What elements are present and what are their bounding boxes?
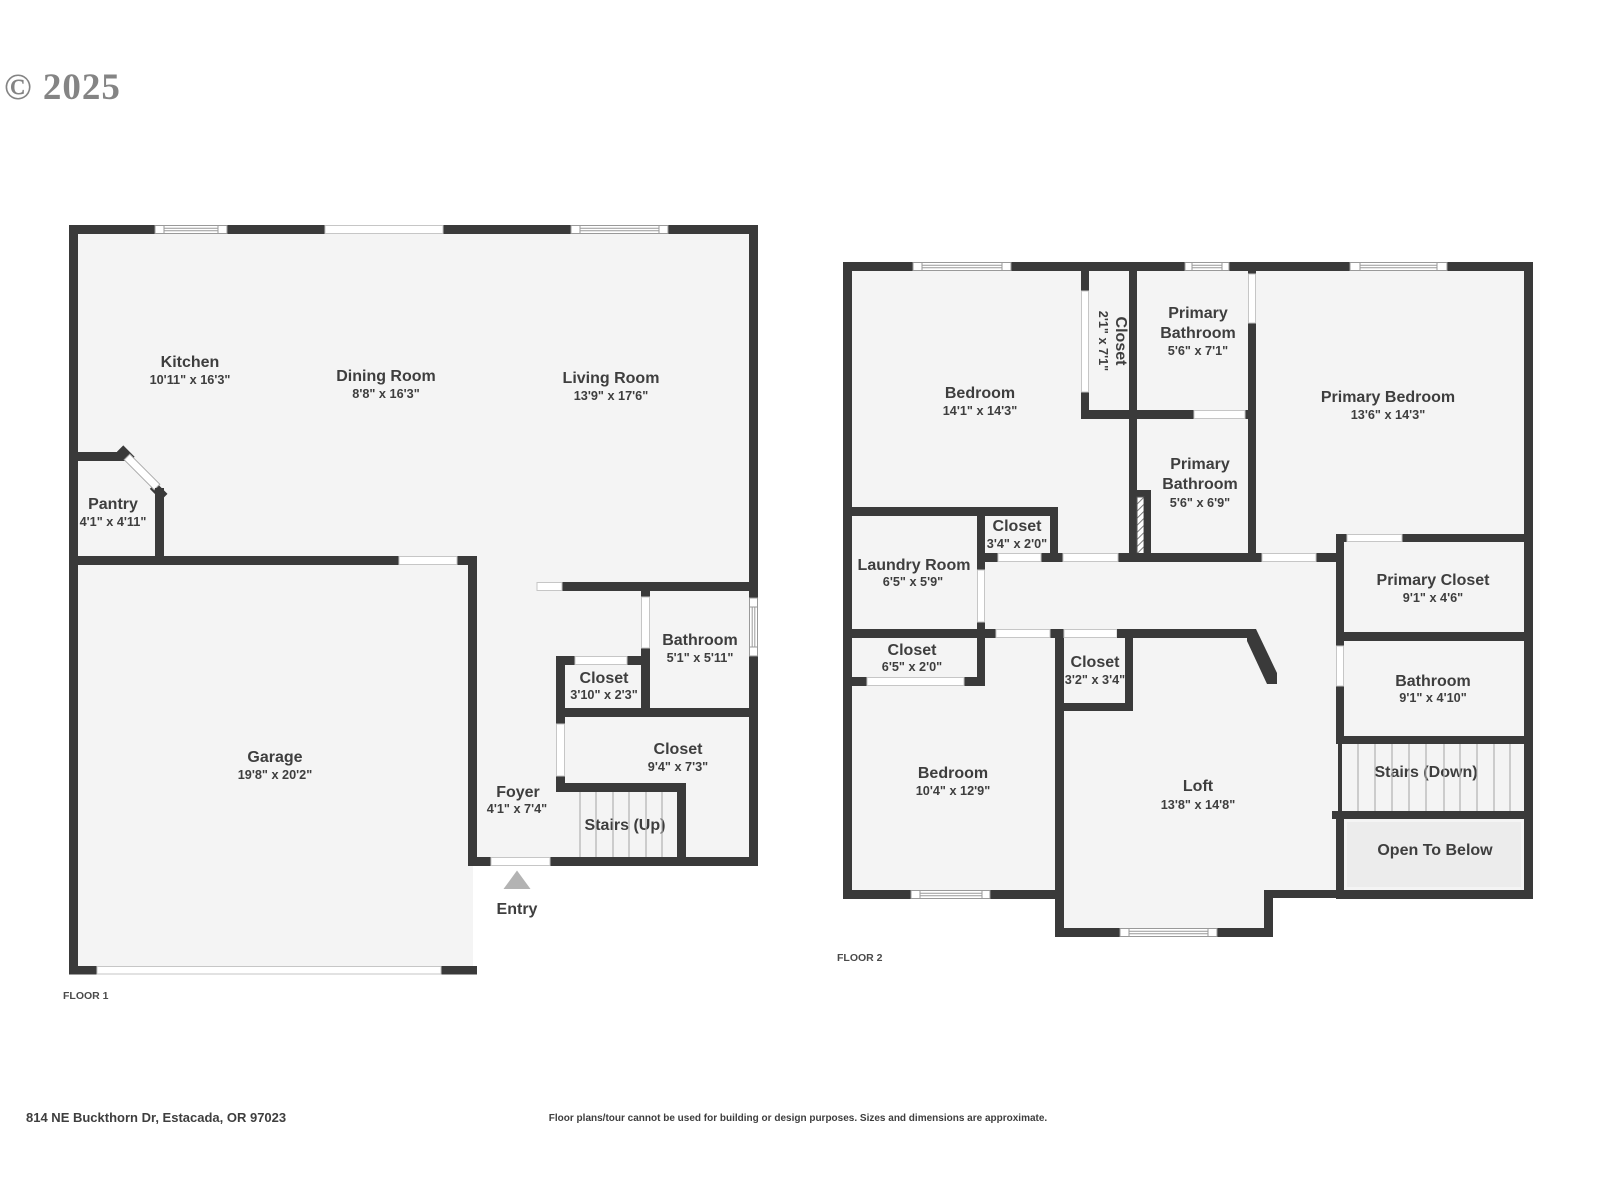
svg-text:FLOOR 2: FLOOR 2 bbox=[837, 952, 883, 964]
svg-text:Closet: Closet bbox=[888, 642, 938, 659]
svg-text:Primary: Primary bbox=[1168, 305, 1228, 322]
svg-text:14'1" x 14'3": 14'1" x 14'3" bbox=[943, 404, 1018, 418]
svg-text:Closet: Closet bbox=[1071, 654, 1121, 671]
svg-text:3'10" x 2'3": 3'10" x 2'3" bbox=[570, 688, 637, 702]
svg-text:© 2025: © 2025 bbox=[4, 67, 121, 108]
svg-text:Open To Below: Open To Below bbox=[1377, 842, 1493, 859]
svg-text:8'8" x 16'3": 8'8" x 16'3" bbox=[352, 387, 419, 401]
svg-text:10'4" x 12'9": 10'4" x 12'9" bbox=[916, 784, 991, 798]
svg-text:10'11" x 16'3": 10'11" x 16'3" bbox=[150, 373, 231, 387]
svg-text:Bathroom: Bathroom bbox=[1395, 673, 1471, 690]
svg-text:Bathroom: Bathroom bbox=[662, 632, 738, 649]
svg-text:2'1" x 7'1": 2'1" x 7'1" bbox=[1096, 311, 1110, 371]
svg-text:6'5" x 2'0": 6'5" x 2'0" bbox=[882, 660, 942, 674]
svg-text:13'8" x 14'8": 13'8" x 14'8" bbox=[1161, 798, 1236, 812]
svg-text:Stairs (Up): Stairs (Up) bbox=[585, 817, 666, 834]
svg-text:5'6" x 6'9": 5'6" x 6'9" bbox=[1170, 496, 1230, 510]
svg-text:Entry: Entry bbox=[497, 901, 538, 918]
svg-text:Living Room: Living Room bbox=[563, 370, 660, 387]
svg-text:Primary Closet: Primary Closet bbox=[1377, 572, 1491, 589]
svg-text:Closet: Closet bbox=[1112, 317, 1129, 367]
svg-text:Closet: Closet bbox=[654, 741, 704, 758]
svg-text:5'1" x 5'11": 5'1" x 5'11" bbox=[667, 651, 734, 665]
svg-text:4'1" x 4'11": 4'1" x 4'11" bbox=[80, 515, 147, 529]
svg-text:Primary Bedroom: Primary Bedroom bbox=[1321, 389, 1455, 406]
svg-text:Kitchen: Kitchen bbox=[161, 354, 220, 371]
svg-text:9'1" x 4'10": 9'1" x 4'10" bbox=[1399, 691, 1466, 705]
svg-text:Bathroom: Bathroom bbox=[1160, 325, 1236, 342]
svg-text:Bedroom: Bedroom bbox=[918, 765, 988, 782]
svg-text:Bedroom: Bedroom bbox=[945, 385, 1015, 402]
svg-text:13'6" x 14'3": 13'6" x 14'3" bbox=[1351, 408, 1426, 422]
svg-text:Garage: Garage bbox=[247, 749, 302, 766]
svg-text:19'8" x 20'2": 19'8" x 20'2" bbox=[238, 768, 313, 782]
svg-text:13'9" x 17'6": 13'9" x 17'6" bbox=[574, 389, 649, 403]
svg-text:Pantry: Pantry bbox=[88, 496, 138, 513]
svg-text:Closet: Closet bbox=[993, 518, 1043, 535]
svg-text:FLOOR 1: FLOOR 1 bbox=[63, 990, 109, 1002]
svg-text:9'4" x 7'3": 9'4" x 7'3" bbox=[648, 760, 708, 774]
svg-text:Foyer: Foyer bbox=[496, 784, 540, 801]
svg-text:6'5" x 5'9": 6'5" x 5'9" bbox=[883, 575, 943, 589]
svg-text:3'4" x 2'0": 3'4" x 2'0" bbox=[987, 537, 1047, 551]
svg-text:Laundry Room: Laundry Room bbox=[858, 557, 971, 574]
svg-text:814 NE Buckthorn Dr, Estacada,: 814 NE Buckthorn Dr, Estacada, OR 97023 bbox=[26, 1110, 286, 1125]
svg-text:9'1" x 4'6": 9'1" x 4'6" bbox=[1403, 591, 1463, 605]
svg-text:4'1" x 7'4": 4'1" x 7'4" bbox=[487, 802, 547, 816]
svg-text:Dining Room: Dining Room bbox=[336, 368, 436, 385]
svg-text:3'2" x 3'4": 3'2" x 3'4" bbox=[1065, 673, 1125, 687]
svg-text:Loft: Loft bbox=[1183, 778, 1214, 795]
svg-text:Bathroom: Bathroom bbox=[1162, 476, 1238, 493]
svg-text:Closet: Closet bbox=[580, 670, 630, 687]
svg-text:Floor plans/tour cannot be use: Floor plans/tour cannot be used for buil… bbox=[549, 1113, 1048, 1124]
svg-text:Primary: Primary bbox=[1170, 456, 1230, 473]
svg-text:5'6" x 7'1": 5'6" x 7'1" bbox=[1168, 344, 1228, 358]
